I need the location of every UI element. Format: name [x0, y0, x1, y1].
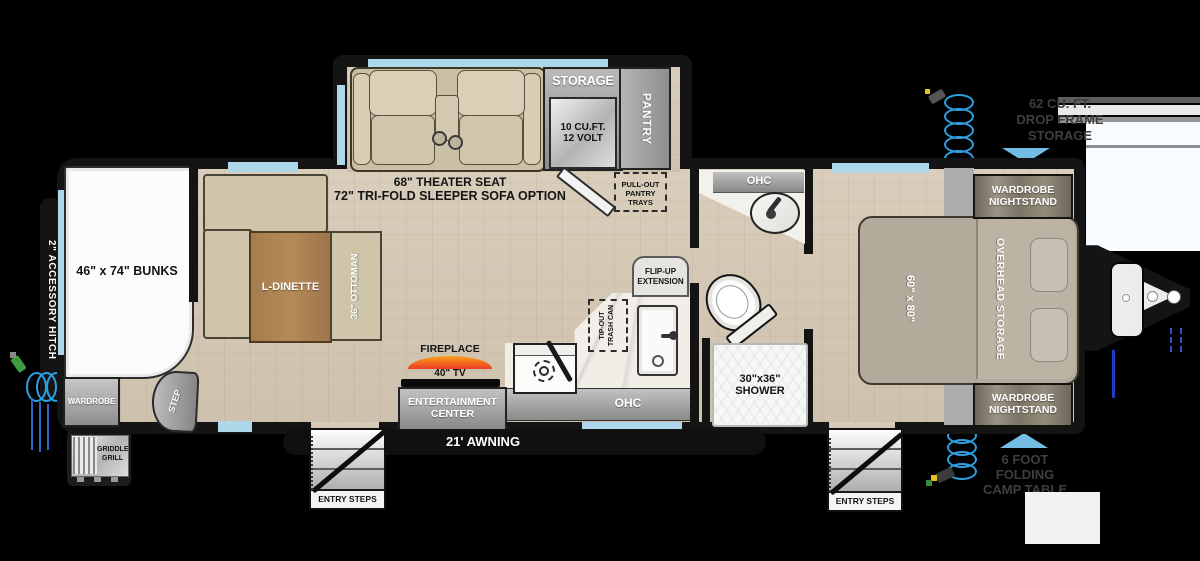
wardrobe-nightstand: WARDROBE NIGHTSTAND: [973, 174, 1073, 219]
tv-label: 40" TV: [428, 368, 472, 379]
fridge-label: 12 VOLT: [563, 133, 603, 144]
shower-label: SHOWER: [735, 385, 785, 397]
hose-line: [39, 402, 41, 452]
window: [337, 85, 345, 165]
floorplan-canvas: 62 CU. FT. DROP FRAME STORAGE 6 FOOT FOL…: [0, 0, 1200, 561]
drop-frame-storage-line: [1086, 145, 1200, 148]
flip-up-extension: FLIP-UP EXTENSION: [632, 256, 689, 297]
theater-seat-label: 68" THEATER SEAT: [310, 176, 590, 189]
bath-ohc-label: OHC: [739, 175, 779, 187]
entry-steps-label: ENTRY STEPS: [311, 489, 384, 508]
griddle-stripes: [73, 437, 97, 474]
griddle-label: GRIDDLE GRILL: [97, 445, 128, 463]
pillow: [1030, 238, 1068, 292]
tip-out-trash-can: TIP-OUT TRASH CAN: [588, 299, 628, 352]
tv: [401, 379, 500, 387]
arrow-up-icon: [1000, 433, 1048, 448]
bath-faucet-knob: [766, 209, 776, 219]
dinette-bench: [203, 229, 253, 339]
refrigerator: 10 CU.FT. 12 VOLT: [549, 97, 617, 169]
kitchen-sink: [637, 305, 678, 376]
bath-wall: [690, 168, 699, 248]
door-swing-dotted: [829, 438, 831, 492]
window: [218, 421, 252, 432]
bed: [858, 216, 1079, 385]
cord-plug-end: [926, 480, 932, 486]
cupholder-icon: [448, 135, 463, 150]
theater-seat: [350, 67, 546, 172]
cupholder-icon: [432, 131, 447, 146]
dinette-table: L-DINETTE: [249, 231, 332, 343]
wardrobe-front: WARDROBE: [63, 377, 120, 427]
camp-table: [1025, 492, 1100, 544]
breakaway-cable: [1180, 328, 1182, 352]
ottoman: 36" OTTOMAN: [330, 231, 382, 341]
step-line: [829, 468, 901, 470]
storage-label: STORAGE: [545, 74, 621, 88]
coupler-hole: [1147, 291, 1158, 302]
sofa-seat-cushion: [371, 115, 435, 165]
window: [368, 59, 608, 67]
window: [832, 163, 929, 173]
griddle-leg: [77, 477, 84, 482]
stove-lid: [515, 345, 575, 356]
pantry: PANTRY: [619, 67, 671, 170]
cord-plug-tip: [925, 89, 930, 94]
pullout-pantry-trays: PULL-OUT PANTRY TRAYS: [614, 172, 667, 212]
door-swing-dotted: [311, 436, 313, 490]
window: [228, 162, 298, 172]
hose-nozzle-tip: [10, 352, 16, 358]
hose-line: [47, 404, 49, 450]
bed-side-step: [944, 168, 974, 217]
griddle-panel: GRIDDLE GRILL: [71, 435, 129, 477]
griddle-grill: GRIDDLE GRILL: [65, 428, 133, 488]
fireplace-label: FIREPLACE: [405, 344, 495, 356]
bunks-label: 46" x 74" BUNKS: [64, 166, 190, 375]
hitch-cable: [1112, 350, 1115, 398]
power-cord-coil: [947, 427, 975, 487]
bath-wall: [702, 338, 710, 424]
bunk-wall: [189, 160, 198, 302]
coupler-ball: [1167, 290, 1181, 304]
step-line: [829, 448, 901, 450]
bath-ohc: OHC: [713, 172, 804, 193]
shower: 30"x36" SHOWER: [712, 343, 808, 427]
bed-size-label: 60" x 80": [900, 244, 920, 354]
camp-table-label: 6 FOOT FOLDING CAMP TABLE: [968, 452, 1082, 497]
griddle-leg: [94, 477, 101, 482]
hose-line: [31, 398, 33, 450]
burner-icon-center: [539, 366, 549, 376]
bath-wall: [804, 168, 813, 254]
entertainment-center: ENTERTAINMENT CENTER: [398, 387, 507, 431]
overhead-storage-label: OVERHEAD STORAGE: [988, 222, 1010, 377]
stove: [513, 343, 577, 394]
kitchen-ohc-label: OHC: [608, 397, 648, 410]
sofa-armrest: [523, 73, 541, 165]
drain-icon: [652, 355, 664, 367]
theater-sofa-option-label: 72" TRI-FOLD SLEEPER SOFA OPTION: [300, 189, 600, 203]
drop-frame-storage-label: 62 CU. FT. DROP FRAME STORAGE: [995, 96, 1125, 144]
entry-steps-label: ENTRY STEPS: [829, 491, 901, 510]
wardrobe-nightstand: WARDROBE NIGHTSTAND: [973, 383, 1073, 427]
griddle-leg: [111, 477, 118, 482]
fridge-label: 10 CU.FT.: [560, 122, 605, 133]
pillow: [1030, 308, 1068, 362]
sofa-seat-back: [457, 70, 525, 116]
sofa-seat-back: [369, 70, 437, 116]
propane-valve: [1122, 294, 1130, 302]
step-line: [311, 448, 384, 450]
faucet-knob: [669, 331, 678, 340]
shower-label: 30"x36": [739, 373, 780, 385]
breakaway-cable: [1170, 328, 1172, 352]
sofa-seat-cushion: [459, 115, 523, 165]
step-line: [311, 468, 384, 470]
